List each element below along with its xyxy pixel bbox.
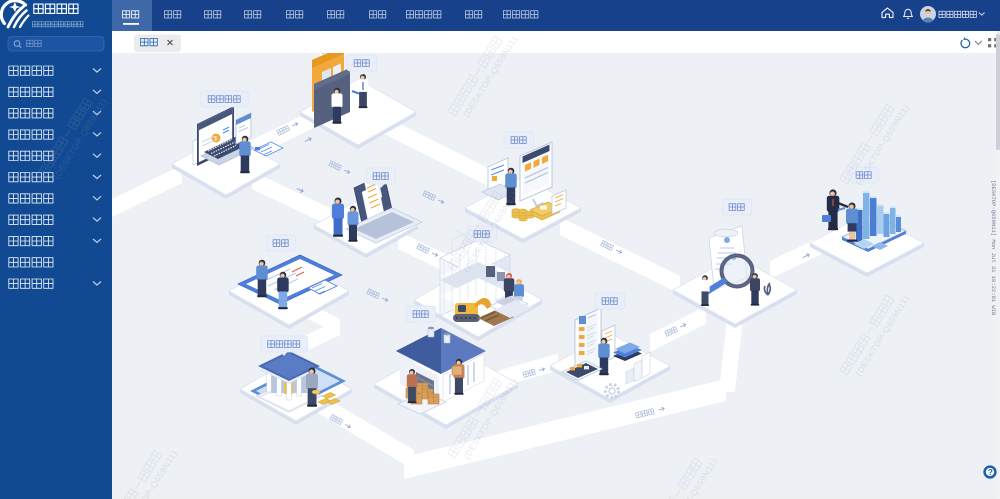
svg-text:?: ? (988, 467, 993, 477)
